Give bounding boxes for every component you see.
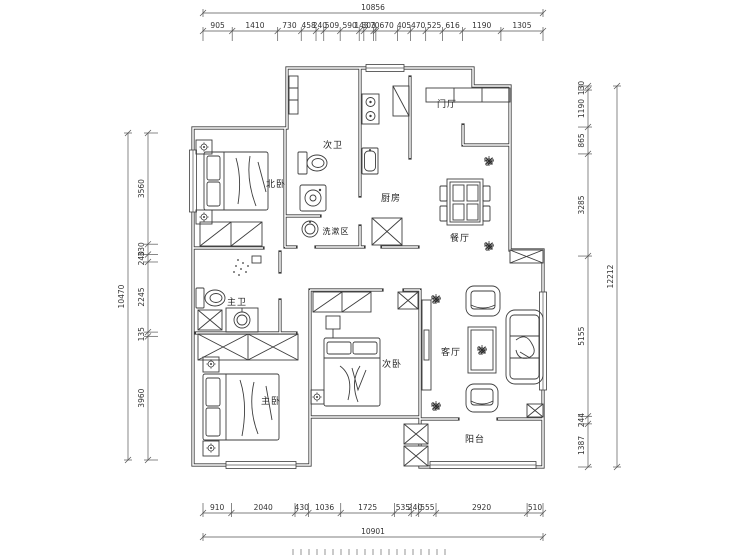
wardrobe-second [313, 292, 371, 312]
dining-table [440, 179, 490, 225]
room-label-north-bedroom: 北卧 [266, 178, 286, 190]
dim-label: 1410 [245, 21, 264, 30]
room-label-dining: 餐厅 [450, 232, 470, 244]
room-labels: 次卫 北卧 洗漱区 厨房 门厅 餐厅 主卫 主卧 次卧 客厅 阳台 [227, 98, 485, 445]
window-master-bedroom [226, 462, 296, 469]
shower [233, 256, 261, 276]
plant-icon [484, 241, 494, 251]
column-living [527, 404, 543, 417]
room-label-wash-area: 洗漱区 [323, 226, 350, 236]
windows [190, 65, 547, 469]
dim-label: 2920 [472, 503, 491, 512]
column-balcony-2 [404, 446, 428, 466]
toilet-second-bath [298, 152, 327, 174]
dim-label: 10901 [361, 527, 385, 536]
toilet-master-bath [196, 288, 225, 308]
tv-cabinet [422, 300, 431, 390]
plant-icon [484, 156, 494, 166]
dim-label: 5155 [577, 326, 586, 345]
dim-label: 1036 [315, 503, 334, 512]
nightstand [203, 441, 219, 456]
dimension-left-chain: 356033024022451353960 [137, 130, 158, 463]
closet-box [398, 292, 418, 309]
dimension-bottom-chain: 9102040430103617255352405552920510 [200, 503, 546, 517]
dim-label: 510 [528, 503, 543, 512]
window-kitchen [366, 65, 404, 72]
dim-label: 2040 [254, 503, 273, 512]
dim-label: 12212 [606, 264, 615, 288]
dim-label: 3960 [137, 388, 146, 407]
dim-label: 470 [411, 21, 426, 30]
plant-icon [477, 345, 487, 355]
room-label-master-bedroom: 主卧 [261, 395, 281, 407]
dim-label: 1387 [577, 436, 586, 455]
dim-label: 135 [137, 327, 146, 342]
sofa [506, 310, 543, 384]
room-label-second-bath: 次卫 [323, 139, 343, 151]
dimension-right-total: 12212 [606, 83, 621, 470]
dim-label: 10470 [117, 284, 126, 308]
window-balcony [430, 462, 536, 469]
wardrobe-north [200, 222, 262, 246]
dim-label: 509 [325, 21, 340, 30]
fridge [393, 86, 409, 116]
dimension-right-chain: 1301190865328551552441387 [577, 81, 592, 470]
dim-label: 240 [137, 251, 146, 266]
dim-label: 555 [420, 503, 435, 512]
wardrobe-master [198, 334, 298, 360]
column-balcony-1 [404, 424, 428, 444]
stove [362, 94, 379, 124]
dim-label: 3560 [137, 179, 146, 198]
dim-label: 1190 [472, 21, 491, 30]
cropped-caption [292, 549, 448, 555]
dim-label: 1190 [577, 99, 586, 118]
dim-label: 670 [379, 21, 394, 30]
dim-label: 3285 [577, 195, 586, 214]
armchair [466, 286, 500, 316]
room-label-entry: 门厅 [437, 98, 457, 110]
dim-label: 910 [210, 503, 225, 512]
room-label-balcony: 阳台 [465, 433, 485, 445]
room-label-kitchen: 厨房 [381, 192, 401, 204]
dimension-left-total: 10470 [117, 130, 132, 463]
dimension-top-total: 10856 [200, 3, 546, 17]
dim-label: 2245 [137, 287, 146, 306]
plant-icon [431, 294, 441, 304]
water-heater [289, 76, 298, 114]
floor-plan-page: 次卫 北卧 洗漱区 厨房 门厅 餐厅 主卫 主卧 次卧 客厅 阳台 10856 … [0, 0, 740, 555]
dim-label: 244 [577, 413, 586, 428]
window-north-bedroom [190, 150, 197, 212]
dim-label: 405 [397, 21, 412, 30]
kitchen-sink [362, 148, 378, 174]
dim-label: 430 [295, 503, 310, 512]
desk [326, 316, 340, 338]
dim-label: 525 [427, 21, 442, 30]
plant-icon [431, 401, 441, 411]
floor-plan-svg: 次卫 北卧 洗漱区 厨房 门厅 餐厅 主卫 主卧 次卧 客厅 阳台 10856 … [0, 0, 740, 555]
dim-label: 10856 [361, 3, 385, 12]
kitchen-counter [372, 218, 402, 245]
dim-label: 1305 [512, 21, 531, 30]
bed-master [203, 374, 279, 440]
room-label-second-bedroom: 次卧 [382, 358, 402, 370]
furniture [196, 76, 543, 456]
walls [193, 68, 543, 467]
dim-label: 1725 [358, 503, 377, 512]
dim-label: 130 [577, 81, 586, 96]
vanity-sink [226, 308, 258, 332]
dimension-top-chain: 9051410730458240509590143303706704054705… [200, 21, 546, 41]
dim-label: 730 [282, 21, 297, 30]
dimension-bottom-total: 10901 [200, 527, 546, 541]
nightstand [311, 390, 324, 404]
bed-second [324, 338, 380, 406]
dim-label: 905 [210, 21, 225, 30]
dim-label: 865 [577, 133, 586, 148]
room-label-living: 客厅 [441, 346, 461, 358]
dim-label: 616 [445, 21, 460, 30]
washing-machine [300, 185, 326, 211]
dim-label: 70 [370, 21, 380, 30]
nightstand [203, 357, 219, 372]
bath-shelf [198, 310, 222, 330]
room-label-master-bath: 主卫 [227, 296, 247, 308]
bed-north [204, 152, 268, 210]
armchair [466, 384, 498, 412]
column-dining-step [510, 250, 543, 263]
wash-basin [302, 221, 318, 237]
